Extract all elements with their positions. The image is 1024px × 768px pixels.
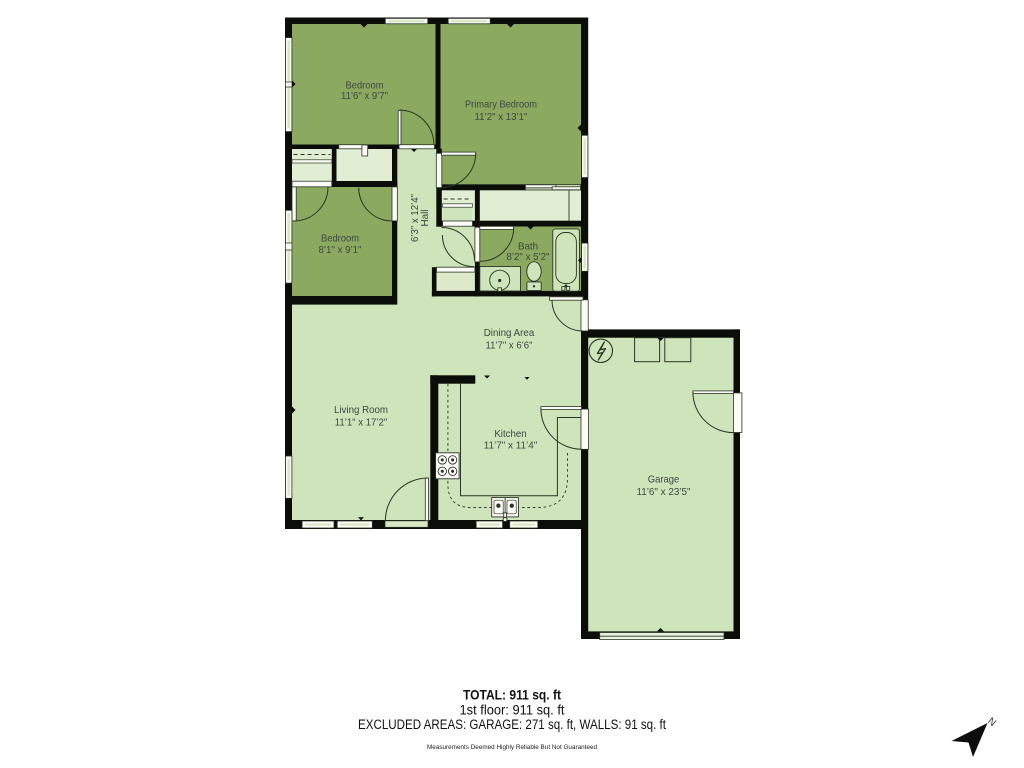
svg-text:EXCLUDED AREAS: GARAGE: 271 sq: EXCLUDED AREAS: GARAGE: 271 sq. ft, WALL… bbox=[358, 717, 666, 732]
svg-text:Bedroom: Bedroom bbox=[346, 81, 384, 92]
svg-text:1st floor: 911 sq. ft: 1st floor: 911 sq. ft bbox=[460, 703, 565, 718]
svg-text:Dining Area: Dining Area bbox=[484, 328, 535, 339]
svg-text:8’1" x 9’1": 8’1" x 9’1" bbox=[319, 245, 362, 256]
svg-text:11’2" x 13’1": 11’2" x 13’1" bbox=[475, 112, 528, 123]
svg-text:Kitchen: Kitchen bbox=[494, 429, 526, 440]
svg-text:11’7" x 6’6": 11’7" x 6’6" bbox=[486, 341, 533, 352]
svg-text:Garage: Garage bbox=[648, 475, 680, 486]
svg-text:11’6" x 23’5": 11’6" x 23’5" bbox=[637, 487, 691, 498]
svg-text:Bedroom: Bedroom bbox=[321, 234, 359, 245]
svg-text:Primary Bedroom: Primary Bedroom bbox=[465, 100, 537, 111]
svg-text:TOTAL: 911 sq. ft: TOTAL: 911 sq. ft bbox=[463, 688, 561, 703]
svg-text:Measurements Deemed Highly Rel: Measurements Deemed Highly Reliable But … bbox=[427, 744, 597, 751]
svg-text:11’7" x 11’4": 11’7" x 11’4" bbox=[484, 441, 538, 452]
svg-text:11’6" x 9’7": 11’6" x 9’7" bbox=[341, 91, 388, 102]
svg-text:11’1" x 17’2": 11’1" x 17’2" bbox=[335, 418, 388, 429]
svg-text:6’3" x 12’4": 6’3" x 12’4" bbox=[410, 194, 421, 242]
svg-text:Bath: Bath bbox=[518, 242, 538, 253]
svg-text:8’2" x 5’2": 8’2" x 5’2" bbox=[507, 252, 550, 263]
svg-text:Living Room: Living Room bbox=[334, 405, 388, 416]
svg-text:Hall: Hall bbox=[420, 210, 431, 227]
